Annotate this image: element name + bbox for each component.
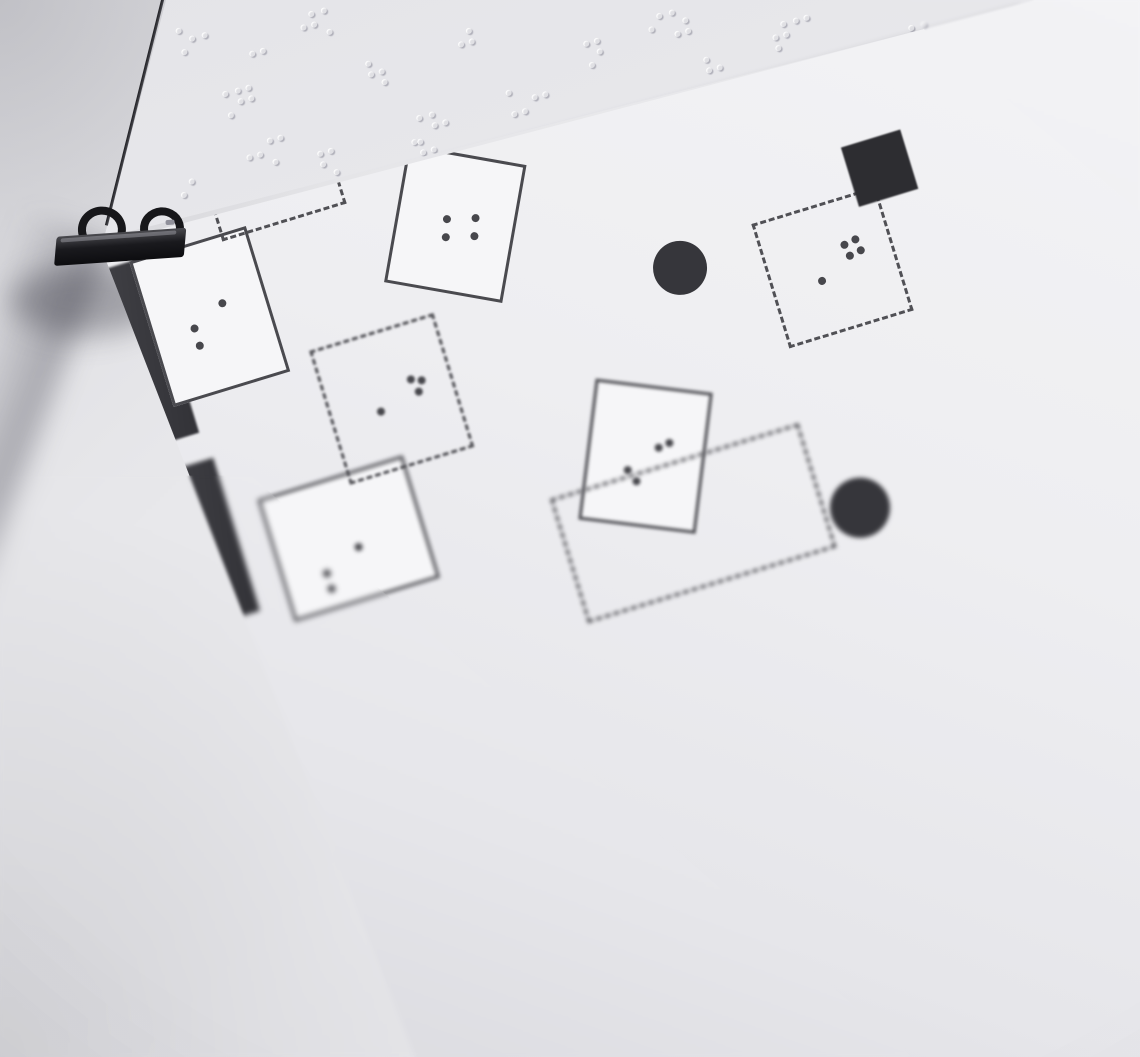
- braille-dot: [195, 341, 205, 351]
- braille-dot: [684, 27, 691, 34]
- braille-dot: [376, 407, 386, 417]
- braille-dot: [417, 138, 424, 145]
- braille-dot: [266, 137, 273, 144]
- braille-dot: [327, 147, 334, 154]
- braille-dot: [181, 48, 188, 55]
- exhibit-room-tilted-1: [384, 144, 526, 303]
- embossed-braille-cluster: [297, 2, 351, 43]
- braille-dot: [354, 542, 364, 552]
- braille-dot: [772, 34, 779, 41]
- braille-dot: [920, 21, 927, 28]
- braille-dot: [583, 40, 590, 47]
- braille-dot: [442, 119, 449, 126]
- clip-pin: [165, 219, 174, 225]
- braille-dot: [319, 161, 326, 168]
- braille-dot: [234, 87, 241, 94]
- braille-dot: [593, 37, 600, 44]
- braille-dot: [468, 38, 475, 45]
- braille-dot: [320, 7, 327, 14]
- braille-dot: [308, 10, 315, 17]
- braille-dot: [542, 91, 549, 98]
- braille-dot: [367, 71, 374, 78]
- braille-dot: [68, 99, 78, 109]
- braille-dot: [596, 48, 603, 55]
- embossed-braille-cluster: [211, 82, 265, 123]
- braille-dot: [505, 89, 512, 96]
- braille-dot: [850, 234, 860, 244]
- braille-dot: [256, 151, 263, 158]
- braille-dot: [531, 94, 538, 101]
- braille-dot: [668, 9, 675, 16]
- photo-stage: Lageplan zur Ausstellung "Berg und Tal": [0, 0, 1140, 1057]
- braille-dot: [782, 31, 789, 38]
- braille-dot: [188, 178, 195, 185]
- braille-dot: [665, 439, 674, 448]
- braille-dot: [378, 68, 385, 75]
- embossed-braille-cluster: [645, 4, 699, 45]
- embossed-braille-cluster: [175, 165, 206, 200]
- braille-dot: [775, 44, 782, 51]
- braille-dot: [317, 150, 324, 157]
- braille-dot: [300, 24, 307, 31]
- braille-dot: [327, 584, 337, 594]
- braille-dot: [272, 158, 279, 165]
- braille-dot: [190, 323, 200, 333]
- braille-dot: [73, 117, 83, 127]
- braille-dot: [333, 168, 340, 175]
- braille-dot: [856, 245, 866, 255]
- braille-dot: [656, 12, 663, 19]
- braille-dot: [521, 108, 528, 115]
- braille-dot: [817, 276, 827, 286]
- braille-dot: [106, 73, 116, 83]
- braille-dot: [442, 215, 451, 224]
- braille-dot: [406, 374, 416, 384]
- braille-dot: [682, 17, 689, 24]
- braille-dot: [703, 56, 710, 63]
- braille-dot: [246, 154, 253, 161]
- braille-dot: [417, 375, 427, 385]
- braille-dot: [326, 28, 333, 35]
- wall-left-block-1: [0, 40, 116, 224]
- braille-dot: [365, 60, 372, 67]
- embossed-braille-cluster: [365, 55, 396, 90]
- braille-dot: [259, 47, 266, 54]
- embossed-braille-cluster: [769, 12, 823, 53]
- braille-dot: [441, 233, 450, 242]
- braille-dot: [792, 17, 799, 24]
- braille-dot: [457, 41, 464, 48]
- braille-dot: [277, 134, 284, 141]
- braille-dot: [430, 146, 437, 153]
- braille-dot: [431, 122, 438, 129]
- braille-dot: [310, 21, 317, 28]
- embossed-braille-cluster: [249, 45, 280, 80]
- braille-dot: [716, 64, 723, 71]
- braille-dot: [227, 112, 234, 119]
- embossed-braille-cluster: [243, 132, 297, 173]
- embossed-braille-cluster: [175, 16, 229, 57]
- wall-top-corner: [0, 0, 120, 18]
- embossed-braille-cluster: [317, 145, 348, 180]
- braille-dot: [470, 232, 479, 241]
- braille-dot: [381, 78, 388, 85]
- braille-dot: [248, 95, 255, 102]
- braille-dot: [465, 27, 472, 34]
- braille-dot: [654, 443, 663, 452]
- braille-dot: [705, 67, 712, 74]
- braille-dot: [245, 84, 252, 91]
- embossed-braille-cluster: [455, 25, 486, 60]
- braille-dot: [428, 111, 435, 118]
- braille-dot: [237, 98, 244, 105]
- braille-dot: [322, 568, 332, 578]
- braille-dot: [648, 26, 655, 33]
- braille-dot: [175, 27, 182, 34]
- braille-dot: [908, 24, 915, 31]
- braille-dot: [416, 114, 423, 121]
- braille-dot: [217, 298, 227, 308]
- embossed-braille-cluster: [505, 78, 559, 119]
- braille-dot: [839, 240, 849, 250]
- binder-clip: [52, 200, 197, 288]
- embossed-braille-cluster: [583, 35, 614, 70]
- braille-dot: [188, 35, 195, 42]
- braille-dot: [249, 50, 256, 57]
- braille-dot: [201, 32, 208, 39]
- braille-dot: [414, 387, 424, 397]
- braille-dot: [780, 20, 787, 27]
- braille-dot: [803, 14, 810, 21]
- braille-dot: [845, 251, 855, 261]
- braille-dot: [588, 61, 595, 68]
- braille-dot: [419, 149, 426, 156]
- braille-dot: [471, 213, 480, 222]
- braille-dot: [511, 110, 518, 117]
- braille-dot: [180, 191, 187, 198]
- braille-dot: [222, 90, 229, 97]
- braille-dot: [674, 30, 681, 37]
